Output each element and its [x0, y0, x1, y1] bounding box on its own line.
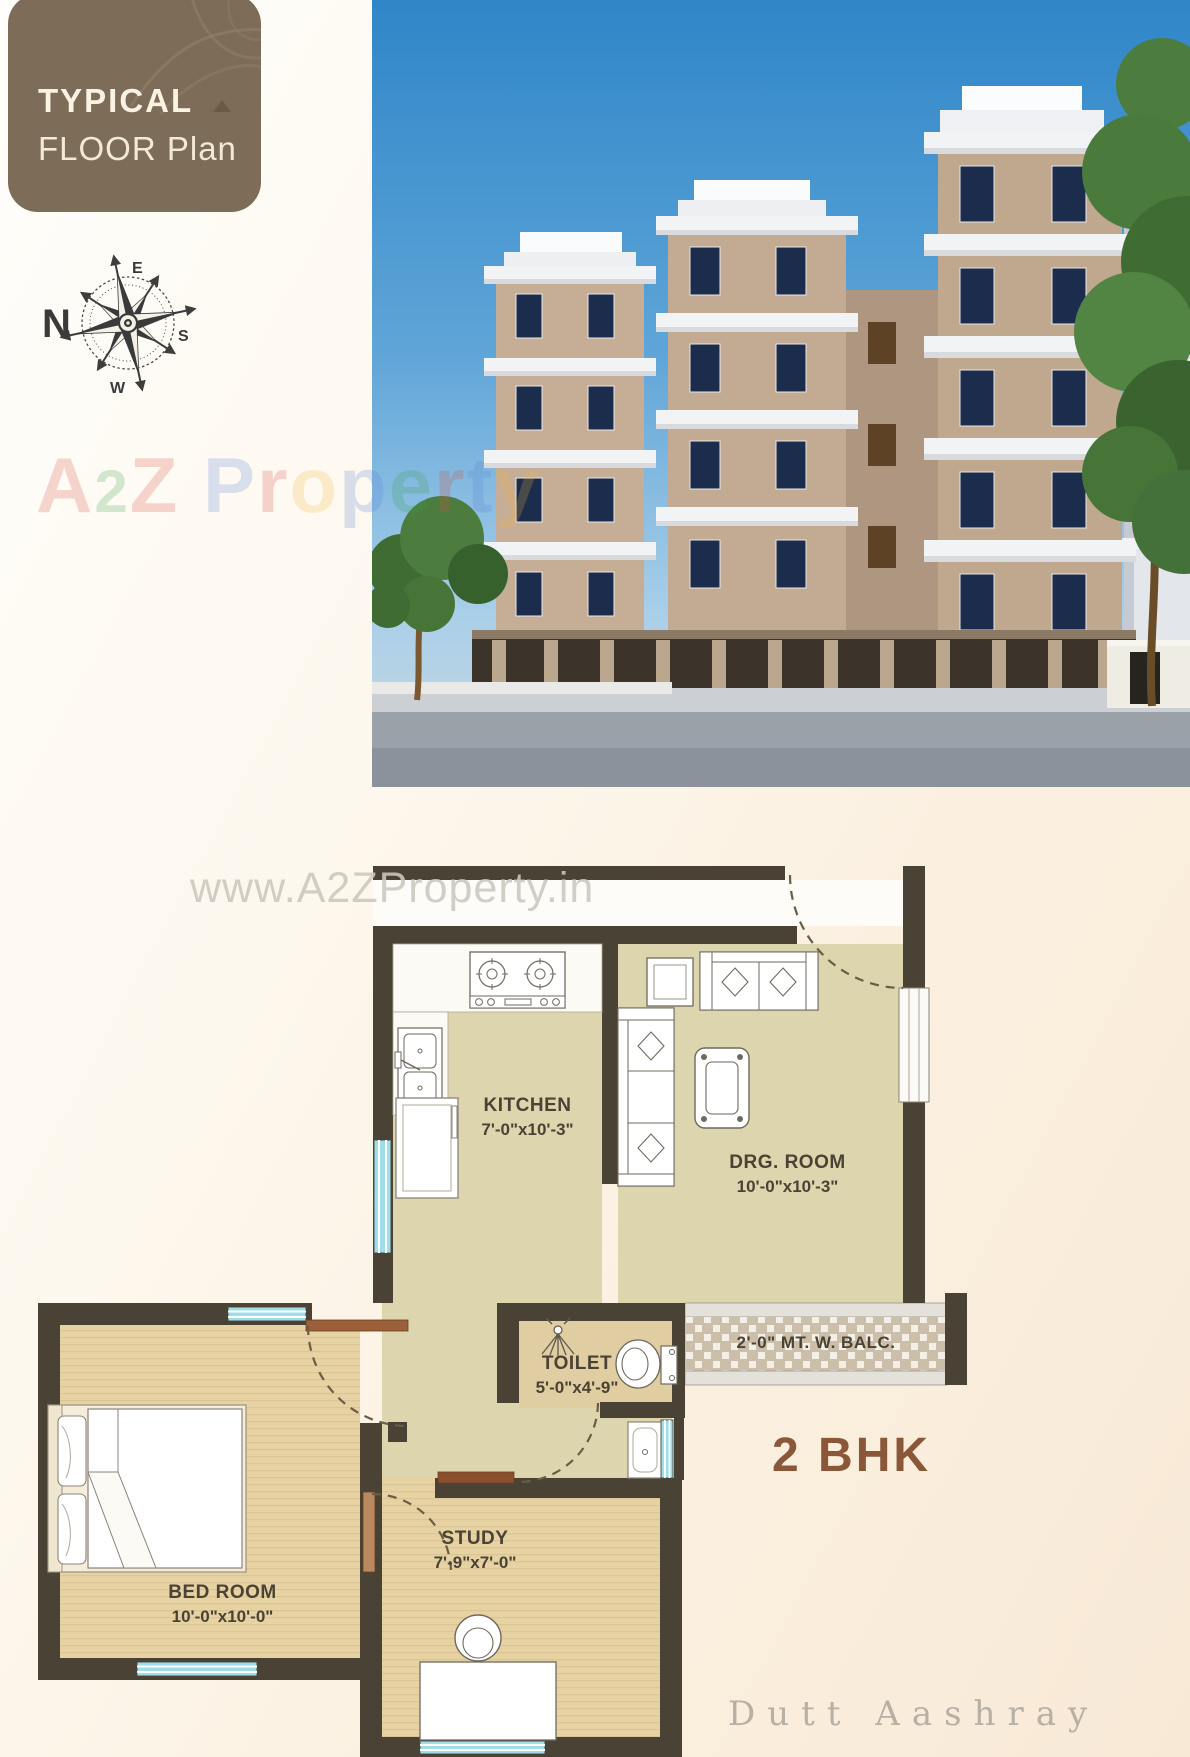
bedroom-door-leaf — [306, 1320, 408, 1331]
logo-letter: o — [289, 441, 339, 529]
window-bedroom-bottom — [137, 1662, 257, 1676]
window-study — [420, 1741, 545, 1754]
window-bedroom-top — [228, 1307, 306, 1321]
logo-letter: 2 — [94, 458, 129, 525]
window-kitchen — [374, 1140, 391, 1253]
logo-letter: A — [36, 441, 94, 529]
study-dims: 7'-9"x7'-0" — [380, 1553, 570, 1573]
sofa-two-seat-icon — [700, 952, 818, 1010]
center-table-icon — [695, 1048, 749, 1128]
kitchen-name: KITCHEN — [430, 1095, 625, 1117]
bedroom-name: BED ROOM — [120, 1582, 325, 1604]
toilet-dims: 5'-0"x4'-9" — [507, 1378, 647, 1398]
washbasin-icon — [628, 1422, 662, 1478]
study-name: STUDY — [380, 1528, 570, 1550]
logo-letter: r — [434, 441, 466, 529]
logo-letter: y — [494, 441, 539, 529]
toilet-door-leaf — [438, 1472, 514, 1483]
toilet-name: TOILET — [507, 1353, 647, 1375]
bedroom-dims: 10'-0"x10'-0" — [120, 1607, 325, 1627]
drawing-room-name: DRG. ROOM — [690, 1152, 885, 1174]
logo-letter: p — [339, 441, 389, 529]
window-drawing-room — [899, 988, 929, 1102]
side-table-icon — [647, 958, 693, 1006]
stove-icon — [470, 952, 565, 1008]
chair-icon — [455, 1615, 501, 1661]
study-label: STUDY 7'-9"x7'-0" — [380, 1528, 570, 1573]
window-passage — [661, 1420, 673, 1478]
brand-watermark: Dutt Aashray — [728, 1694, 1099, 1734]
logo-letter: t — [467, 441, 495, 529]
logo-watermark: A2Z Property — [36, 440, 540, 531]
logo-letter: e — [389, 441, 434, 529]
logo-letter: r — [257, 441, 289, 529]
drawing-room-label: DRG. ROOM 10'-0"x10'-3" — [690, 1152, 885, 1197]
balcony-label: 2'-0" MT. W. BALC. — [690, 1333, 942, 1353]
flyer-page: TYPICAL FLOOR Plan — [0, 0, 1190, 1757]
unit-type-label: 2 BHK — [772, 1428, 931, 1483]
study-door-leaf — [363, 1492, 375, 1572]
floor-plan — [0, 0, 1190, 1757]
drawing-room-dims: 10'-0"x10'-3" — [690, 1177, 885, 1197]
sofa-three-seat-icon — [618, 1008, 674, 1186]
kitchen-label: KITCHEN 7'-0"x10'-3" — [430, 1095, 625, 1140]
kitchen-dims: 7'-0"x10'-3" — [430, 1120, 625, 1140]
bedroom-label: BED ROOM 10'-0"x10'-0" — [120, 1582, 325, 1627]
logo-letter: P — [203, 441, 257, 529]
logo-letter: Z — [130, 441, 180, 529]
url-watermark: www.A2ZProperty.in — [190, 864, 594, 913]
bed-icon — [48, 1405, 246, 1572]
toilet-label: TOILET 5'-0"x4'-9" — [507, 1353, 647, 1398]
desk-icon — [420, 1662, 556, 1740]
